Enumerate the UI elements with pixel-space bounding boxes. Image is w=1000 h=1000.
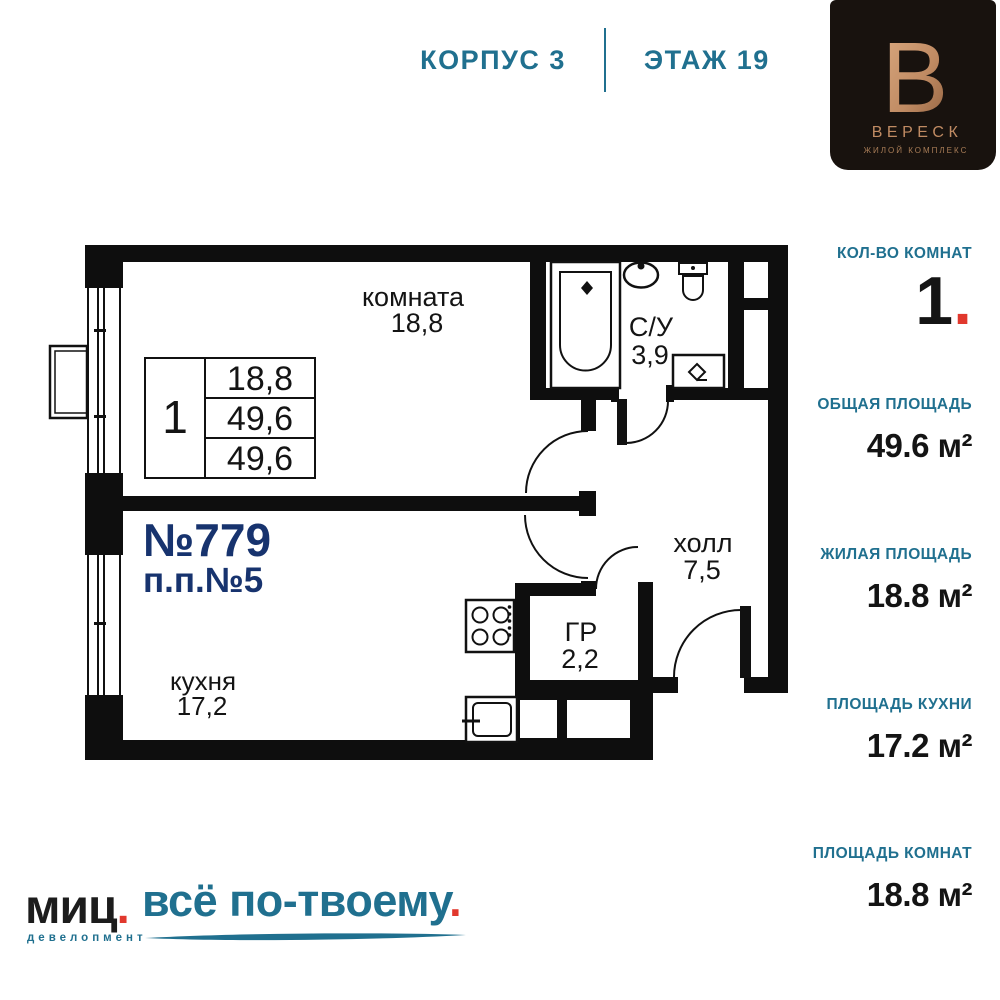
- room-area-bathroom: 3,9: [631, 340, 669, 370]
- apartment-plan-sheet: КОРПУС 3 ЭТАЖ 19 В ВЕРЕСК ЖИЛОЙ КОМПЛЕКС…: [0, 0, 1000, 1000]
- window-kitchen: [87, 555, 121, 695]
- mits-logo: миц.: [25, 884, 129, 932]
- room-area-kitchen: 17,2: [177, 691, 228, 721]
- living-door-arc: [526, 431, 588, 493]
- window-living: [87, 288, 121, 473]
- bathroom-door-leaf: [618, 400, 626, 444]
- apartment-number: №779: [143, 514, 271, 566]
- room-label-bathroom: С/У: [629, 312, 674, 342]
- bathroom-door-arc: [626, 401, 668, 443]
- toilet-icon: [679, 263, 707, 300]
- stove-icon: [466, 600, 514, 652]
- red-dot: .: [449, 875, 461, 926]
- info-table: 1 18,8 49,6 49,6: [145, 358, 315, 478]
- entrance-door-arc: [674, 610, 741, 677]
- floor-plan: 1 18,8 49,6 49,6 №779 п.п.№5 комната 18,…: [0, 0, 1000, 1000]
- plan-position-number: п.п.№5: [143, 561, 263, 600]
- washing-machine-icon: [673, 355, 724, 388]
- red-dot: .: [117, 881, 129, 934]
- table-rooms-count: 1: [162, 391, 188, 443]
- kitchen-door-arc: [525, 515, 588, 578]
- tagline: всё по-твоему.: [142, 878, 461, 923]
- balcony-basket: [50, 346, 87, 418]
- kitchen-fixtures: [462, 600, 517, 742]
- bathtub-icon: [551, 262, 620, 388]
- room-area-wardrobe: 2,2: [561, 644, 599, 674]
- sink-icon: [624, 263, 658, 288]
- room-area-living: 18,8: [391, 308, 444, 338]
- table-total-area-2: 49,6: [227, 440, 293, 478]
- table-total-area: 49,6: [227, 400, 293, 438]
- tagline-underline: [145, 931, 467, 949]
- duct-niches: [520, 700, 630, 738]
- kitchen-sink-icon: [462, 697, 517, 742]
- entrance-door-leaf: [741, 607, 750, 677]
- wardrobe-door-arc: [596, 547, 638, 589]
- room-label-wardrobe: ГР: [565, 617, 598, 647]
- table-living-area: 18,8: [227, 360, 293, 398]
- mits-caption: девелопмент: [27, 932, 147, 944]
- room-area-hall: 7,5: [683, 555, 721, 585]
- room-label-hall: холл: [673, 528, 732, 558]
